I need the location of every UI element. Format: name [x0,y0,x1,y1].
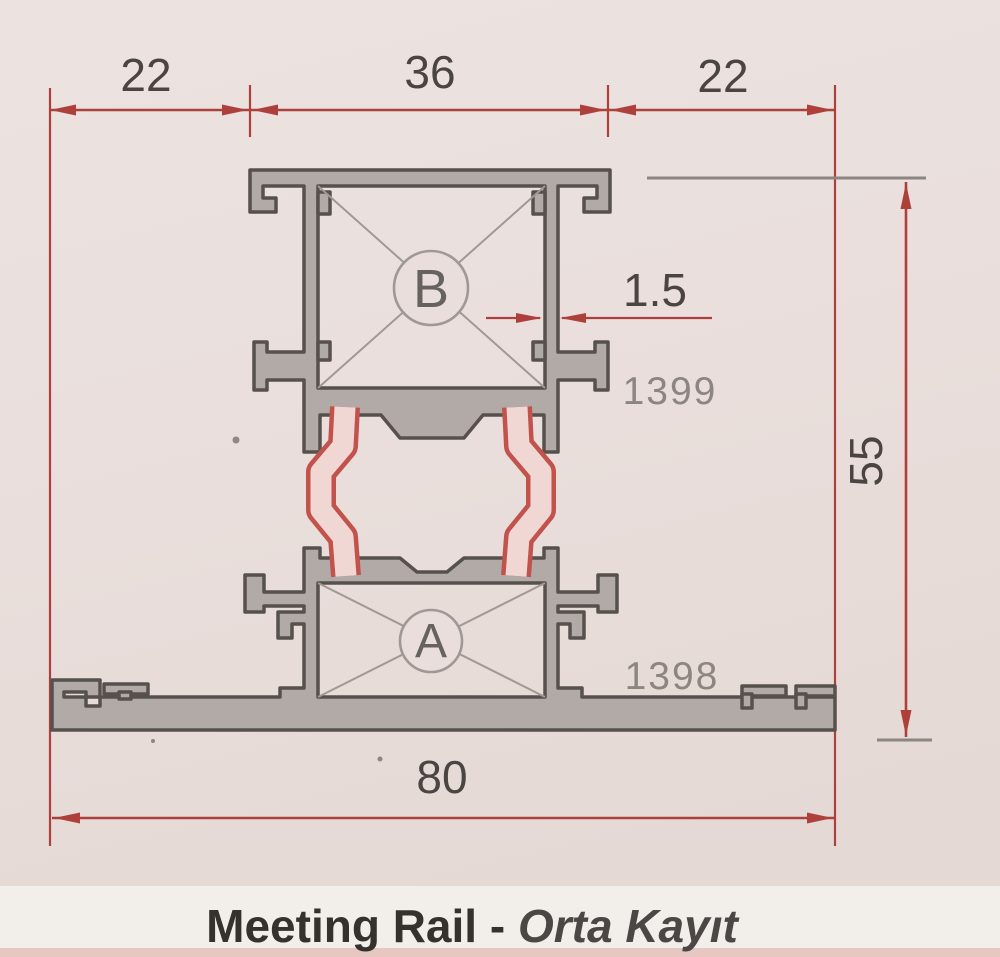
dim-wall-thickness-label: 1.5 [623,264,687,316]
chamber-b-label: B [413,259,449,319]
photo-speck [151,739,155,743]
base-t-tab-stem [119,692,131,699]
base-hook-leg [742,694,752,708]
technical-drawing: B A 22 36 22 1.5 80 55 1399 1398 Meeting… [0,0,1000,957]
caption-main: Meeting Rail - [206,900,518,952]
caption: Meeting Rail - Orta Kayıt [206,900,739,952]
dim-top-right-label: 22 [697,50,748,102]
dim-top-middle-label: 36 [404,46,455,98]
chamber-a-label: A [415,615,447,668]
dim-overall-height-label: 55 [840,435,892,486]
part-number-lower: 1398 [625,655,720,698]
photo-speck [378,757,383,762]
dim-top-left-label: 22 [120,49,171,101]
wall-tab [533,342,545,360]
dim-overall-width-label: 80 [416,751,467,803]
part-number-upper: 1399 [623,370,718,413]
caption-area: Meeting Rail - Orta Kayıt [0,886,1000,957]
photo-speck [233,437,240,444]
base-hook-leg [796,694,806,708]
catalog-page-photo: B A 22 36 22 1.5 80 55 1399 1398 Meeting… [0,0,1000,957]
caption-sub: Orta Kayıt [518,900,740,952]
wall-tab [318,342,330,360]
